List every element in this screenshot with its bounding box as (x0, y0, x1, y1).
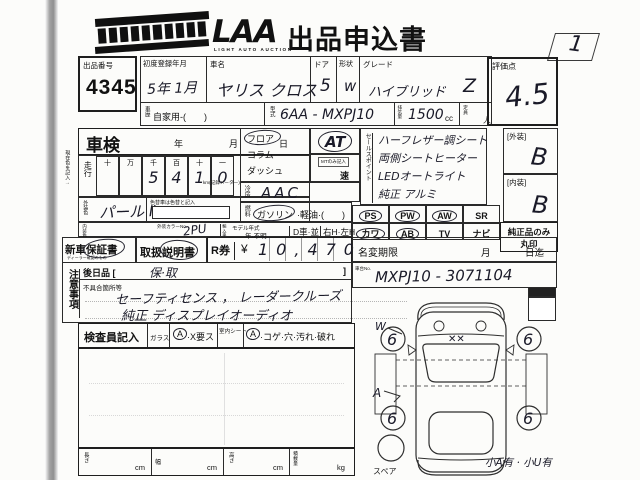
spare-circle (378, 435, 404, 461)
fuel-opts-rest: ·軽油·( ) (297, 208, 345, 221)
wheel-mark-rr: 6 (523, 409, 533, 428)
warranty-cell: 新車保証書 ディーラー確認のもの (62, 237, 136, 263)
windshield-mark: ✕✕ (448, 334, 465, 345)
grade-label: グレード (363, 59, 393, 70)
car-name-label: 車名 (210, 59, 225, 70)
length-unit: cm (135, 463, 145, 472)
mt-note: MTのみ記入 (318, 157, 349, 167)
model-code-label: 型式 (268, 106, 274, 117)
equip-ps-label: PS (359, 210, 381, 222)
wheel-mark-fr: 6 (523, 330, 533, 349)
history-value: 自家用-( ) (153, 110, 207, 123)
car-name-cell: 車名 ヤリス クロス (206, 56, 311, 103)
glass-options: ·X要ス (187, 330, 214, 343)
km-note: km(記録メーター) (203, 180, 240, 186)
shift-opt-column: コラム (247, 148, 274, 161)
chassis-label: 車台No. (355, 266, 367, 271)
history-cell: 車歴 自家用-( ) (140, 102, 265, 126)
name-change-label: 名変期限 (358, 244, 398, 259)
door-panel-right (526, 354, 547, 414)
manual-cell: 取扱説明書 (136, 237, 207, 263)
mileage-label: 走行 (83, 161, 91, 177)
mileage-digit-cell: 千 5 (142, 156, 165, 196)
name-change-day: 日迄 (525, 245, 544, 259)
ac-label: 冷房 (243, 185, 249, 197)
digit-head: 十 (189, 158, 210, 168)
import-label: 輸入車 (220, 224, 226, 237)
shape-value: w (344, 77, 356, 95)
shaken-label: 車検 (86, 131, 120, 156)
door-value: 5 (320, 76, 331, 96)
shift-box: フロア コラム ダッシュ (240, 128, 310, 182)
notes-box: 注意事項 後日品 [ 保·取 ] 不具合箇所等 セーフティセンス ， レーダーク… (62, 262, 352, 323)
chassis-value: MXPJ10 - 3071104 (375, 266, 513, 286)
car-diagram: 6 6 6 6 ✕✕ W A スペア (368, 296, 568, 480)
displacement-label: 排気量 (397, 105, 402, 119)
model-code-value: 6AA - MXPJ10 (280, 107, 374, 123)
interior-grade-label: [内装] (507, 177, 526, 188)
chassis-row: 車台No. MXPJ10 - 3071104 (352, 262, 557, 288)
digit-head: 十 (97, 158, 118, 168)
shift-floor-circle (244, 129, 282, 146)
hood-circle-left (434, 321, 444, 331)
wheel-mark-rl: 6 (387, 409, 397, 428)
exterior-grade-value: B (530, 142, 549, 172)
fuel-row: 燃料 ガソリン ·軽油·( ) (240, 202, 352, 222)
notes-label: 注意事項 (66, 269, 80, 318)
digit-value: 4 (166, 168, 187, 187)
price-digit-grid: 10,470 (253, 238, 351, 261)
dimensions-row: 長さ cm 幅 cm 高さ cm 積載量 kg (78, 448, 355, 476)
grade-value: ハイブリッド (368, 81, 446, 100)
lot-number-label: 出品番号 (83, 60, 113, 71)
later-items-close: ] (343, 266, 346, 276)
color-no-value: 2PU (182, 221, 207, 238)
equip-pw-label: PW (395, 210, 420, 222)
score-label: 評価点 (492, 61, 516, 72)
int-color-label: 内装色 (82, 224, 87, 237)
logo-laa: LAA (212, 14, 277, 50)
name-change-month: 月 (481, 245, 491, 259)
later-items-label: 後日品 [ (83, 266, 116, 279)
seat-a-mark: A (246, 328, 260, 340)
grade-cell: グレード ハイブリッド Z (359, 56, 492, 103)
later-items-row: 後日品 [ 保·取 ] (79, 263, 353, 280)
mt-cell: MTのみ記入 速 (310, 154, 360, 182)
mirror-left (408, 345, 416, 355)
shift-opt-dash: ダッシュ (247, 164, 283, 177)
ac-value: AAC (261, 184, 301, 202)
lot-number-value: 4345 (86, 76, 137, 100)
exterior-grade-label: [外装] (507, 131, 526, 142)
mark-a-arrow (384, 391, 400, 402)
door-label: ドア (314, 59, 329, 70)
later-items-value: 保·取 (149, 264, 177, 281)
mileage-digit-cell: 百 4 (165, 156, 188, 196)
sales-point-line3: LEDオートライト (378, 168, 466, 184)
grade-value-2: Z (463, 75, 476, 97)
shift-value-cell: AT (310, 128, 360, 154)
capacity-label: 定員 (462, 105, 467, 115)
rear-window (429, 412, 493, 454)
model-code-cell: 型式 6AA - MXPJ10 (264, 102, 395, 126)
rticket-cell: R券 ¥ 10,470 (207, 237, 352, 263)
glass-a-mark: A (173, 328, 187, 340)
damage-note: 小A有 · 小U有 (485, 455, 552, 470)
inspector-label: 検査員記入 (84, 329, 139, 345)
warranty-circle (82, 237, 125, 260)
mirror-right (506, 345, 514, 355)
width-label: 幅 (155, 457, 161, 466)
first-reg-value: 5年 1月 (147, 77, 198, 99)
notes-line2: 純正 ディスプレイオーディオ (121, 305, 292, 324)
mark-a: A (372, 386, 381, 400)
length-label: 長さ (82, 452, 88, 463)
mileage-digit-cell: 十 1 (188, 156, 211, 196)
load-label: 積載量 (292, 451, 297, 465)
door-cell: ドア 5 (310, 56, 337, 103)
equip-aw: AW (アルミホイール) (426, 205, 463, 223)
digit-head: 万 (120, 158, 141, 168)
logo-subtitle: LIGHT AUTO AUCTION (214, 47, 293, 52)
door-panel-left (375, 354, 396, 414)
glass-label: ガラス (150, 332, 169, 342)
speed-label: 速 (340, 169, 349, 182)
digit-head: 百 (166, 158, 187, 168)
scan-edge-strip (45, 0, 58, 480)
hood-circle-right (476, 321, 486, 331)
shift-value-circle (318, 131, 352, 152)
history-label: 車歴 (143, 106, 149, 117)
fuel-label: 燃料 (243, 205, 249, 217)
inspector-row: 検査員記入 ガラス A ·X要ス 室内シート A ·コゲ·穴·汚れ·破れ (78, 323, 355, 348)
shaken-month-unit: 月 (229, 137, 238, 150)
inspector-blank-box (78, 348, 355, 448)
shape-cell: 形状 w (336, 56, 360, 103)
height-label: 高さ (227, 452, 233, 463)
color-change-note: 色替車は色替と記入 (150, 199, 195, 206)
ac-row: 冷房 AAC (240, 182, 360, 202)
equip-ps: PS (パワステ) (352, 205, 389, 223)
yen-sign: ¥ (241, 242, 248, 256)
first-reg-cell: 初度登録年月 5年 1月 (140, 56, 207, 103)
name-change-row: 名変期限 月 日迄 (352, 237, 557, 262)
displacement-cell: 排気量 1500 cc (394, 102, 460, 126)
equip-aw-label: AW (432, 210, 457, 222)
margin-note: 現在色を記入→ (64, 150, 69, 186)
height-unit: cm (273, 463, 283, 472)
page-title: 出品申込書 (287, 18, 427, 57)
equip-sr: SR (サンルーフ) (463, 205, 500, 223)
color-change-cell: 色替車は色替と記入 (146, 198, 236, 221)
mileage-digit-cell: 十 (96, 156, 119, 196)
shape-label: 形状 (339, 59, 353, 69)
digit-value: 5 (143, 168, 164, 187)
score-value: 4.5 (503, 77, 551, 114)
displacement-value: 1500 (408, 107, 444, 123)
auction-sheet-scan: LAA LIGHT AUTO AUCTION 出品申込書 1 出品番号 4345… (0, 0, 640, 480)
first-reg-label: 初度登録年月 (143, 59, 187, 69)
equip-sr-label: SR (471, 211, 492, 221)
seat-options: ·コゲ·穴·汚れ·破れ (260, 330, 335, 343)
int-color-row: 内装色 外装カラーNo. 2PU 輸入車 モデル年式 年·不明 D車·並 右H·… (78, 222, 352, 237)
equip-pw: PW (パワーウインド) (389, 205, 426, 223)
sales-point-box: セールスポイント ハーフレザー調シート 両側シートヒーター LEDオートライト … (360, 128, 487, 205)
load-unit: kg (337, 463, 345, 472)
displacement-unit: cc (445, 114, 453, 123)
score-box: 評価点 4.5 (487, 57, 558, 126)
digit-head: 千 (143, 158, 164, 168)
rticket-label: R券 (211, 242, 235, 260)
windshield (423, 344, 499, 382)
spare-label: スペア (373, 467, 396, 476)
mileage-digit-cell: 万 (119, 156, 142, 196)
mileage-digit-cell: 一 0 (211, 156, 234, 196)
color-change-input-box (152, 206, 230, 219)
width-unit: cm (207, 463, 217, 472)
stamp-logo (95, 12, 209, 54)
lot-number-box: 出品番号 4345 (78, 56, 137, 112)
interior-grade-box: [内装] B (503, 174, 558, 222)
shaken-year-unit: 年 (174, 137, 183, 150)
interior-grade-value: B (531, 190, 549, 219)
seat-label: 室内シート (219, 329, 243, 336)
sales-point-label: セールスポイント (364, 133, 373, 203)
sales-point-line4: 純正 アルミ (378, 186, 436, 202)
price-value: 10,470 (258, 240, 362, 259)
sales-point-line1: ハーフレザー調シート (378, 132, 487, 148)
exterior-grade-box: [外装] B (503, 128, 558, 174)
car-name-value: ヤリス クロス (216, 77, 317, 101)
mark-w: W (375, 320, 387, 333)
wheel-mark-fl: 6 (387, 330, 397, 349)
digit-head: 一 (212, 158, 233, 168)
ext-color-label: 外装色 (82, 200, 87, 215)
sales-point-line2: 両側シートヒーター (378, 150, 477, 166)
